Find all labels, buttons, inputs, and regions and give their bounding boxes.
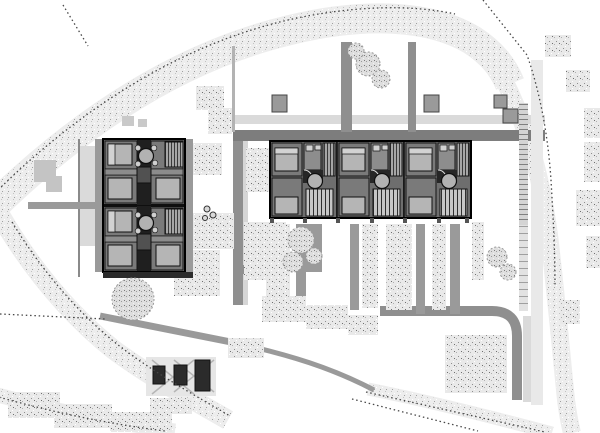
veg-patch [262,296,306,322]
stairs [373,189,400,216]
site-plan-drawing [0,0,600,433]
gray-marker [46,176,62,192]
left-housing-block [103,139,185,272]
veg-patch [584,142,600,182]
bed-pillow [275,148,298,154]
gray-marker [138,119,147,127]
tree [500,264,516,280]
site-shed [494,95,507,108]
bollard [210,212,216,218]
veg-patch [584,108,600,138]
building-post [336,218,340,223]
east-verge [531,60,543,405]
veg-patch [560,300,580,324]
storage [151,236,183,242]
bollard [203,216,208,221]
gray-marker [122,116,134,126]
garden-strip-path [350,224,359,310]
bed-pillow [342,148,365,154]
east-path-light [523,316,532,402]
bed [108,245,132,266]
right-building-module [270,141,337,218]
veg-patch [445,335,507,393]
garden-strip-lawn [472,222,484,280]
tree [372,70,390,88]
kitchen-counter [165,142,183,167]
garden-strip-lawn [432,224,446,310]
left-building-shadow [103,272,193,278]
sofa [275,197,298,214]
kitchen-counter [323,143,335,176]
tree [487,247,507,267]
chair [151,212,157,218]
bed [156,245,180,266]
north-path-2 [408,42,416,132]
access-road [233,130,545,141]
left-building-unit [103,206,185,272]
bed-pillow [409,148,432,154]
bathroom [137,167,151,183]
right-housing-block [270,141,471,218]
sink [382,145,388,150]
building-post [270,218,274,223]
building-post [465,218,469,223]
bed [156,178,180,199]
veg-patch [208,108,232,134]
boundary-dotted-stub [63,5,88,46]
building-post [437,218,441,223]
bed [108,178,132,199]
sofa [342,197,365,214]
stairs [306,189,333,216]
veg-patch [545,35,571,57]
site-plan-canvas [0,0,600,433]
storage [105,169,137,175]
toilet [440,145,447,151]
building-post [303,218,307,223]
right-building-module [337,141,404,218]
pergola-opening [195,360,210,391]
chair [135,145,141,151]
dining-table [139,149,154,164]
left-balcony-strip-west [95,139,103,272]
veg-patch [150,398,192,414]
building-post [370,218,374,223]
tree [306,248,322,264]
pergola-opening [153,366,165,384]
veg-patch [566,70,590,92]
chair [135,161,141,167]
veg-patch [586,236,600,268]
dining-table [308,174,323,189]
garden-strip-lawn [362,224,378,308]
chair [151,145,157,151]
west-path-light [79,146,97,246]
left-balcony-strip-east [185,139,193,272]
kitchen-counter [390,143,402,176]
chair [152,227,158,233]
veg-patch [54,404,112,428]
site-shed [503,109,518,123]
west-cross-path [28,202,98,209]
toilet [373,145,380,151]
right-building-module [404,141,471,218]
garden-strip-path [450,224,460,314]
chair [135,228,141,234]
building-post [403,218,407,223]
storage [105,236,137,242]
south-path-diagonal [100,316,236,343]
garden-strip-path [416,224,425,314]
site-shed [272,95,287,112]
site-shed [424,95,439,112]
veg-patch [196,86,224,110]
sink [449,145,455,150]
veg-patch [576,190,600,226]
veg-patch [348,315,378,335]
toilet [306,145,313,151]
north-path-3 [232,46,235,132]
veg-patch [8,392,60,418]
footpath-upper [233,115,545,124]
dining-table [442,174,457,189]
chair [135,212,141,218]
sofa [409,197,432,214]
veg-patch [228,338,264,358]
chair [152,160,158,166]
bed-pillow [108,144,115,165]
bollard [204,206,210,212]
garden-strip-lawn [386,224,412,310]
left-building-unit [103,139,185,205]
tree [348,43,364,59]
pergola-opening [174,365,187,385]
stairs [440,189,467,216]
mid-road-vertical [233,141,243,305]
veg-patch [306,305,348,329]
tree [283,252,303,272]
kitchen-counter [457,143,469,176]
kitchen-counter [165,209,183,234]
tree [112,278,154,320]
sink [315,145,321,150]
veg-patch [110,412,172,432]
site-groundwork-layer [0,18,600,433]
storage [151,169,183,175]
bed-pillow [108,211,115,232]
dining-table [375,174,390,189]
dining-table [139,216,154,231]
bathroom [137,234,151,250]
